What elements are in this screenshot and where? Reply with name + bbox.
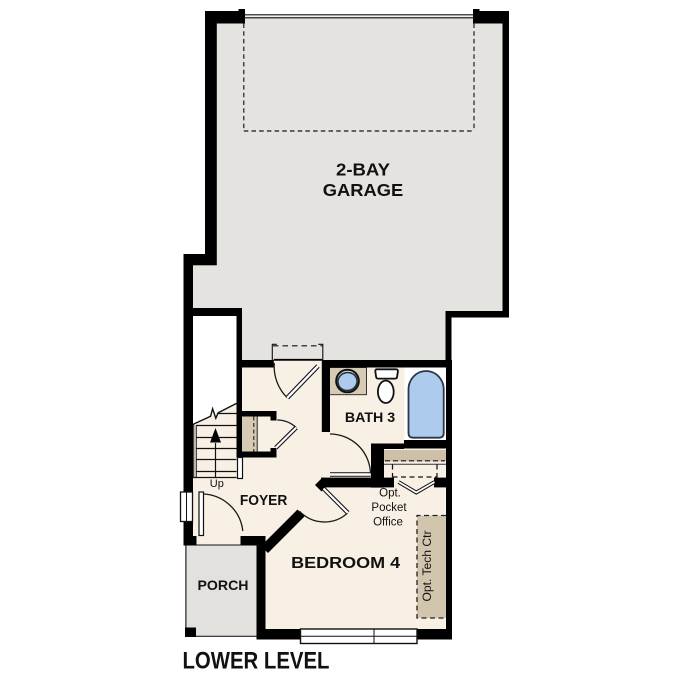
svg-text:FOYER: FOYER (240, 493, 288, 509)
svg-text:Pocket: Pocket (371, 502, 407, 514)
svg-text:BEDROOM 4: BEDROOM 4 (291, 555, 400, 572)
svg-text:GARAGE: GARAGE (323, 180, 404, 200)
svg-text:Opt.: Opt. (379, 488, 401, 500)
svg-text:2-BAY: 2-BAY (336, 160, 390, 180)
svg-text:PORCH: PORCH (198, 577, 249, 593)
svg-text:BATH 3: BATH 3 (345, 409, 396, 425)
svg-text:LOWER LEVEL: LOWER LEVEL (183, 648, 330, 675)
svg-text:Opt. Tech Ctr: Opt. Tech Ctr (422, 530, 434, 601)
svg-text:Up: Up (210, 478, 224, 490)
svg-text:Office: Office (373, 517, 403, 529)
